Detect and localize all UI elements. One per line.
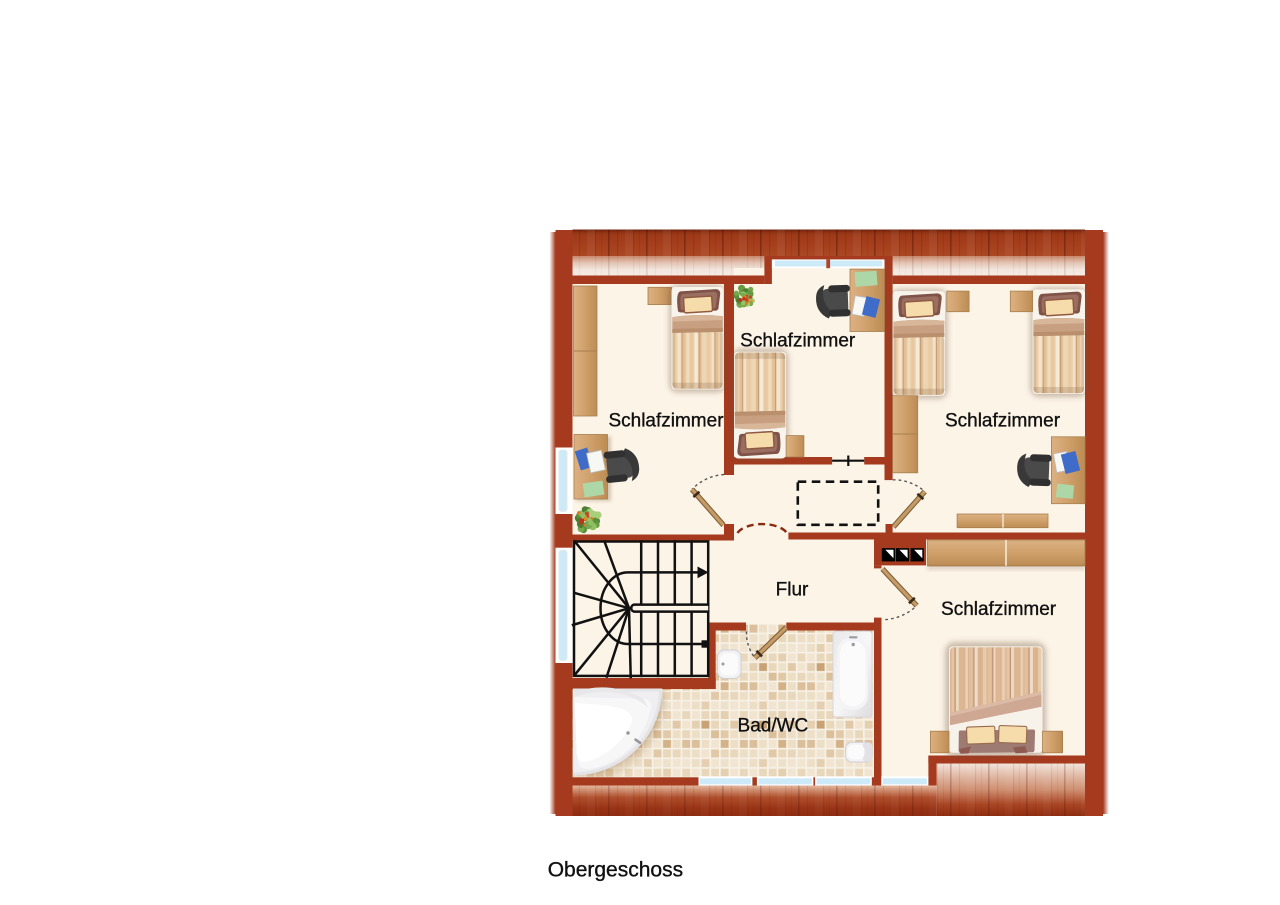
svg-text:Schlafzimmer: Schlafzimmer	[608, 411, 724, 432]
svg-text:Flur: Flur	[776, 580, 809, 601]
svg-text:Schlafzimmer: Schlafzimmer	[945, 411, 1061, 432]
svg-text:Schlafzimmer: Schlafzimmer	[941, 599, 1057, 620]
svg-text:Obergeschoss: Obergeschoss	[548, 859, 683, 882]
svg-text:Schlafzimmer: Schlafzimmer	[740, 330, 856, 351]
svg-text:Bad/WC: Bad/WC	[738, 716, 809, 737]
